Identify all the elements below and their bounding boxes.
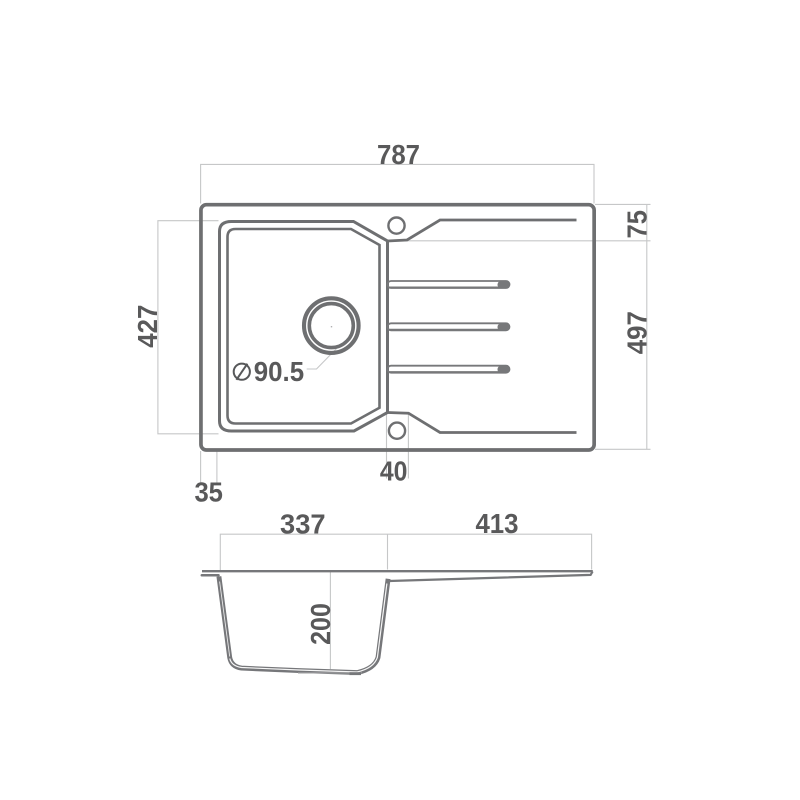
svg-text:337: 337 (280, 508, 326, 539)
svg-text:75: 75 (621, 210, 652, 239)
svg-text:413: 413 (475, 508, 518, 539)
svg-text:200: 200 (305, 603, 336, 645)
svg-text:497: 497 (621, 311, 652, 354)
svg-text:787: 787 (377, 139, 420, 170)
svg-text:35: 35 (194, 477, 223, 508)
svg-text:90.5: 90.5 (254, 356, 304, 387)
svg-text:40: 40 (380, 456, 408, 487)
svg-text:427: 427 (132, 305, 163, 348)
